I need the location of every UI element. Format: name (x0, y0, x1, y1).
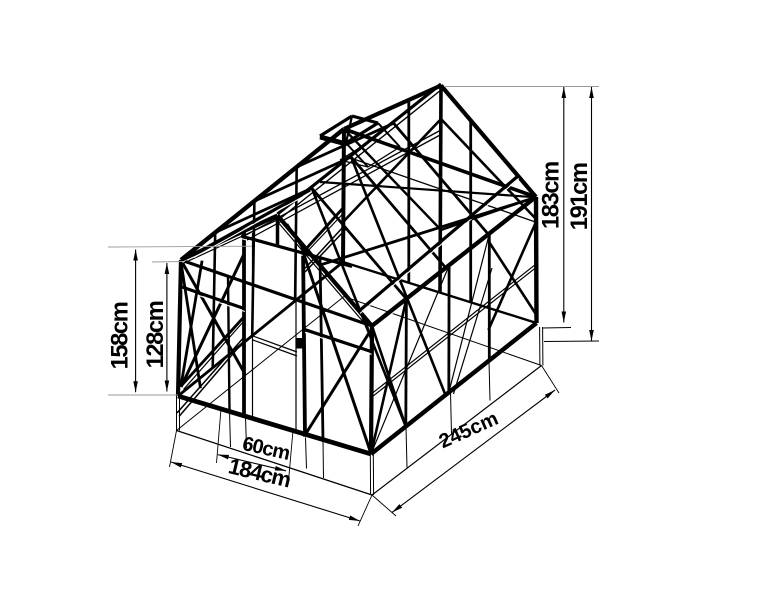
svg-text:158cm: 158cm (107, 302, 133, 369)
svg-text:183cm: 183cm (539, 162, 565, 229)
svg-text:128cm: 128cm (143, 301, 169, 368)
svg-text:245cm: 245cm (436, 408, 502, 453)
svg-text:191cm: 191cm (567, 163, 593, 230)
